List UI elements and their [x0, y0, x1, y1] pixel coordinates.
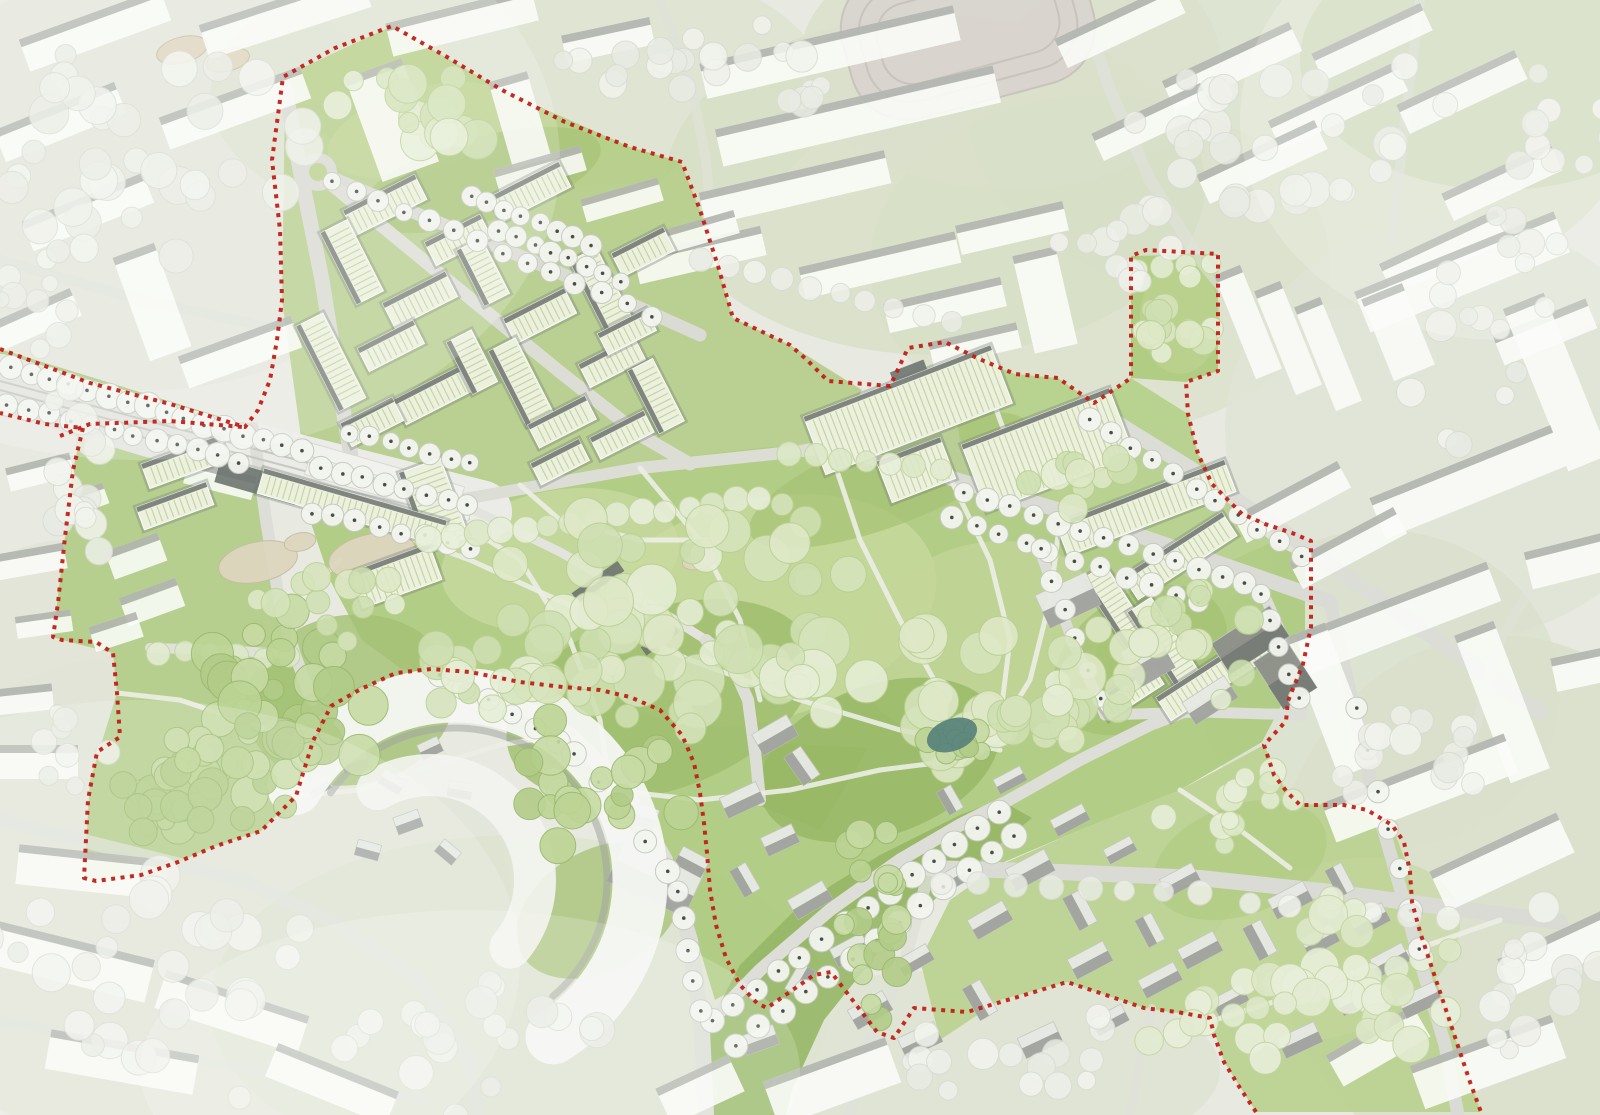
tree — [1175, 320, 1204, 349]
tree — [1446, 431, 1472, 457]
tree — [1496, 956, 1524, 984]
tree — [999, 1043, 1023, 1067]
tree — [1341, 915, 1374, 948]
tree — [718, 255, 740, 277]
tree — [1085, 616, 1111, 642]
tree — [1105, 675, 1135, 705]
tree — [1142, 197, 1172, 227]
tree — [1249, 1042, 1281, 1074]
tree — [242, 623, 265, 646]
tree — [1058, 726, 1085, 753]
tree — [1158, 235, 1183, 260]
tree — [1221, 811, 1239, 829]
tree — [846, 820, 874, 848]
tree — [699, 42, 727, 70]
tree — [689, 248, 713, 272]
tree — [591, 767, 613, 789]
tree — [1365, 722, 1393, 750]
tree — [317, 615, 338, 636]
tree — [939, 1081, 958, 1100]
tree — [540, 828, 576, 864]
tree — [1528, 892, 1559, 923]
tree — [686, 505, 729, 548]
tree — [306, 590, 330, 614]
tree — [771, 493, 793, 515]
tree — [1079, 1048, 1103, 1072]
tree — [918, 681, 958, 721]
tree — [831, 283, 851, 303]
tree — [1077, 1071, 1096, 1090]
tree — [1332, 766, 1354, 788]
tree — [861, 994, 881, 1014]
tree — [931, 459, 952, 480]
tree — [1000, 695, 1031, 726]
tree — [801, 86, 824, 109]
tree — [1048, 636, 1082, 670]
tree — [1154, 882, 1174, 902]
tree — [845, 660, 888, 703]
tree — [882, 905, 911, 934]
tree — [1438, 939, 1461, 962]
tree — [1176, 629, 1207, 660]
tree — [1453, 727, 1474, 748]
tree — [879, 453, 901, 475]
tree — [1436, 907, 1460, 931]
tree — [830, 556, 866, 592]
tree — [723, 486, 749, 512]
tree — [788, 563, 821, 596]
tree — [85, 538, 112, 565]
tree — [682, 28, 704, 50]
tree — [1124, 111, 1146, 133]
tree — [376, 567, 401, 592]
tree — [647, 37, 674, 64]
tree — [669, 75, 696, 102]
tree — [515, 748, 543, 776]
tree — [1504, 939, 1524, 959]
tree — [899, 618, 934, 653]
tree — [261, 589, 290, 618]
tree — [473, 636, 502, 665]
tree — [1136, 321, 1165, 350]
tree — [415, 526, 442, 553]
tree — [1209, 132, 1241, 164]
tree — [786, 41, 818, 73]
tree — [1393, 1026, 1430, 1063]
tree — [1078, 876, 1103, 901]
tree — [1211, 689, 1231, 709]
tree — [352, 596, 374, 618]
tree — [1174, 130, 1203, 159]
tree — [1240, 893, 1261, 914]
tree — [349, 567, 376, 594]
tree — [1151, 804, 1176, 829]
tree — [850, 860, 872, 882]
tree — [769, 523, 810, 564]
tree — [798, 277, 822, 301]
tree — [734, 44, 762, 72]
tree — [534, 704, 567, 737]
tree — [854, 290, 875, 311]
tree — [829, 448, 852, 471]
tree — [876, 822, 898, 844]
tree — [941, 311, 962, 332]
tree — [852, 965, 872, 985]
tree — [1188, 881, 1213, 906]
tree — [677, 599, 704, 626]
tree — [805, 443, 828, 466]
tree — [418, 631, 454, 667]
tree — [513, 517, 540, 544]
tree — [643, 615, 684, 656]
tree — [615, 704, 638, 727]
tree — [833, 914, 854, 935]
tree — [770, 267, 793, 290]
tree — [1042, 685, 1074, 717]
tree — [1462, 772, 1485, 795]
tree — [1107, 220, 1128, 241]
tree — [1234, 605, 1263, 634]
tree — [785, 664, 820, 699]
tree — [927, 1049, 952, 1074]
tree — [1506, 362, 1527, 383]
tree — [777, 442, 801, 466]
tree — [464, 520, 490, 546]
tree — [753, 16, 772, 35]
tree — [1278, 895, 1301, 918]
tree — [564, 652, 602, 690]
masterplan-page — [0, 0, 1600, 1115]
tree — [1273, 992, 1296, 1015]
tree — [654, 501, 676, 523]
tree — [647, 739, 672, 764]
tree — [606, 65, 628, 87]
tree — [605, 502, 630, 527]
tree — [1390, 723, 1422, 755]
tree — [675, 713, 706, 744]
tree — [856, 451, 877, 472]
tree — [1004, 874, 1028, 898]
tree — [1167, 158, 1197, 188]
tree — [1058, 494, 1088, 524]
tree — [1549, 984, 1581, 1016]
tree — [1496, 386, 1515, 405]
tree — [1065, 459, 1094, 488]
tree — [1479, 991, 1511, 1023]
tree — [913, 305, 935, 327]
tree — [1397, 904, 1421, 928]
tree — [1050, 233, 1069, 252]
tree — [743, 260, 766, 283]
tree — [338, 632, 357, 651]
tree — [1235, 768, 1254, 787]
tree — [578, 523, 623, 568]
tree — [75, 507, 96, 528]
tree — [626, 564, 677, 615]
tree — [146, 642, 170, 666]
tree — [703, 581, 738, 616]
tree — [384, 594, 405, 615]
tree — [967, 1038, 998, 1069]
tree — [1151, 596, 1182, 627]
tree — [1179, 266, 1201, 288]
tree — [1102, 445, 1129, 472]
tree — [44, 458, 72, 486]
tree — [1176, 69, 1197, 90]
tree — [493, 546, 528, 581]
tree — [1381, 973, 1414, 1006]
tree — [1114, 880, 1134, 900]
tree — [1019, 1072, 1043, 1096]
tree — [629, 498, 655, 524]
tree — [1221, 1004, 1245, 1028]
tree — [479, 695, 507, 723]
tree — [883, 298, 903, 318]
tree — [1135, 1027, 1163, 1055]
tree — [1391, 706, 1411, 726]
tree — [1077, 233, 1097, 253]
tree — [777, 89, 801, 113]
tree — [1086, 1004, 1111, 1029]
tree — [878, 873, 898, 893]
tree — [497, 604, 530, 637]
tree — [1180, 1009, 1207, 1036]
tree — [810, 696, 842, 728]
tree — [487, 517, 513, 543]
tree — [313, 666, 354, 707]
tree — [747, 487, 771, 511]
tree — [1282, 789, 1304, 811]
tree — [930, 872, 952, 894]
tree — [1246, 996, 1270, 1020]
tree — [554, 51, 573, 70]
tree — [1487, 1028, 1507, 1048]
tree — [1039, 875, 1064, 900]
tree — [611, 755, 645, 789]
tree — [529, 666, 567, 704]
tree — [1434, 752, 1464, 782]
tree — [1397, 378, 1426, 407]
tree — [882, 957, 911, 986]
tree — [1259, 772, 1281, 794]
tree — [1209, 74, 1239, 104]
tree — [1016, 471, 1040, 495]
tree — [967, 872, 990, 895]
tree — [1129, 628, 1159, 658]
tree — [583, 576, 633, 626]
tree — [441, 523, 467, 549]
tree — [1219, 187, 1250, 218]
tree — [1292, 978, 1330, 1016]
tree — [302, 563, 331, 592]
tree — [441, 660, 474, 693]
tree — [1190, 585, 1211, 606]
tree — [664, 795, 698, 829]
tree — [714, 625, 763, 674]
tree — [554, 792, 591, 829]
tree — [1228, 660, 1255, 687]
tree — [979, 616, 1018, 655]
masterplan-canvas — [0, 0, 1600, 1115]
tree — [267, 639, 295, 667]
tree — [537, 515, 558, 536]
tree — [1044, 1072, 1071, 1099]
tree — [914, 1022, 939, 1047]
tree — [902, 454, 926, 478]
